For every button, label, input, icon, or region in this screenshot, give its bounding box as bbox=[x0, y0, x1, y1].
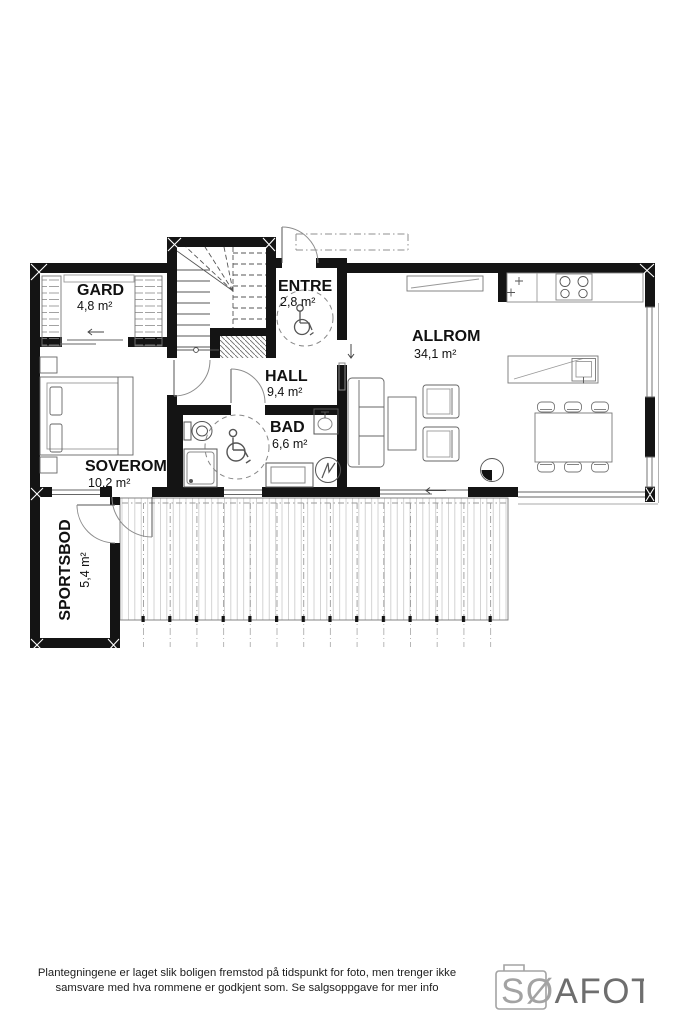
dining-set bbox=[535, 402, 612, 472]
living-furniture bbox=[348, 378, 504, 482]
direction-arrows bbox=[348, 344, 446, 494]
coffee-table bbox=[388, 397, 416, 450]
wheelchair-icon bbox=[227, 429, 251, 463]
deck-terrace bbox=[120, 498, 508, 647]
photographer-logo: SØAFOTO bbox=[494, 957, 644, 1013]
room-label-sportsbod: SPORTSBOD bbox=[57, 519, 74, 620]
room-area-entre: 2,8 m² bbox=[280, 295, 315, 309]
washing-machine bbox=[316, 458, 341, 483]
vanity bbox=[266, 463, 313, 487]
shower bbox=[184, 449, 217, 487]
wood-stove bbox=[481, 459, 504, 482]
disclaimer-text: Plantegningene er laget slik boligen fre… bbox=[16, 966, 478, 996]
disclaimer-line-1: Plantegningene er laget slik boligen fre… bbox=[16, 966, 478, 981]
dining-table bbox=[535, 413, 612, 462]
nightstand bbox=[40, 457, 57, 473]
room-label-bad: BAD bbox=[270, 419, 305, 436]
armchair bbox=[423, 385, 459, 418]
doormat bbox=[220, 336, 266, 358]
toilet bbox=[184, 422, 212, 441]
room-label-gard: GARD bbox=[77, 282, 124, 299]
room-label-entre: ENTRE bbox=[278, 278, 333, 295]
room-label-soverom: SOVEROM bbox=[85, 458, 167, 475]
staircase bbox=[177, 247, 266, 358]
disclaimer-line-2: samsvare med hva rommene er godkjent som… bbox=[16, 981, 478, 996]
soverom-bed bbox=[40, 357, 133, 473]
sofa bbox=[348, 378, 384, 467]
step-down-arrow bbox=[348, 344, 354, 358]
floor-plan-page: GARD 4,8 m² ENTRE 2,8 m² ALLROM 34,1 m² … bbox=[0, 0, 683, 1024]
wheelchair-icon bbox=[295, 305, 314, 335]
kitchen-sink bbox=[507, 277, 523, 297]
wheelchair-turning-circle-bad bbox=[205, 415, 269, 479]
porch-outline bbox=[296, 234, 408, 250]
room-area-allrom: 34,1 m² bbox=[414, 347, 456, 361]
sliding-door-arrow bbox=[88, 329, 104, 335]
logo-text: SØAFOTO bbox=[501, 972, 644, 1011]
dining-chairs bbox=[538, 402, 609, 472]
room-area-soverom: 10,2 m² bbox=[88, 476, 130, 490]
room-area-hall: 9,4 m² bbox=[267, 385, 302, 399]
armchair bbox=[423, 427, 459, 461]
cooktop bbox=[556, 274, 592, 300]
kitchen-island bbox=[508, 356, 598, 384]
floor-plan-drawing: GARD 4,8 m² ENTRE 2,8 m² ALLROM 34,1 m² … bbox=[0, 0, 683, 1024]
bad-fixtures bbox=[184, 409, 341, 487]
room-label-hall: HALL bbox=[265, 368, 308, 385]
room-label-allrom: ALLROM bbox=[412, 328, 480, 345]
sideboard bbox=[407, 276, 483, 291]
room-area-gard: 4,8 m² bbox=[77, 299, 112, 313]
room-area-bad: 6,6 m² bbox=[272, 437, 307, 451]
nightstand bbox=[40, 357, 57, 373]
room-area-sportsbod: 5,4 m² bbox=[78, 552, 92, 587]
